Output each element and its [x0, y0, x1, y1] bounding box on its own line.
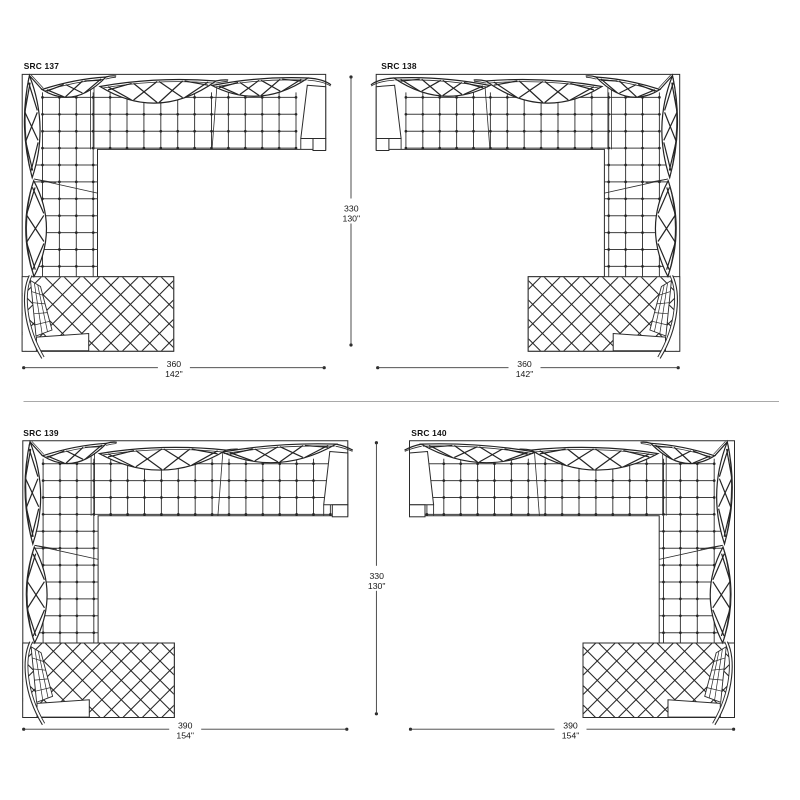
- svg-text:154": 154": [176, 731, 194, 741]
- svg-text:SRC 137: SRC 137: [24, 61, 60, 71]
- svg-text:SRC 138: SRC 138: [381, 61, 417, 71]
- svg-text:390: 390: [178, 720, 193, 730]
- svg-text:360: 360: [167, 359, 182, 369]
- svg-text:SRC 139: SRC 139: [23, 428, 59, 438]
- svg-text:142": 142": [165, 369, 183, 379]
- svg-text:360: 360: [517, 359, 532, 369]
- svg-text:390: 390: [563, 720, 578, 730]
- svg-text:SRC 140: SRC 140: [411, 428, 447, 438]
- svg-text:130": 130": [368, 581, 386, 591]
- svg-text:330: 330: [344, 204, 359, 214]
- svg-text:130": 130": [343, 214, 361, 224]
- svg-text:142": 142": [516, 369, 534, 379]
- svg-text:330: 330: [369, 571, 384, 581]
- svg-text:154": 154": [562, 731, 580, 741]
